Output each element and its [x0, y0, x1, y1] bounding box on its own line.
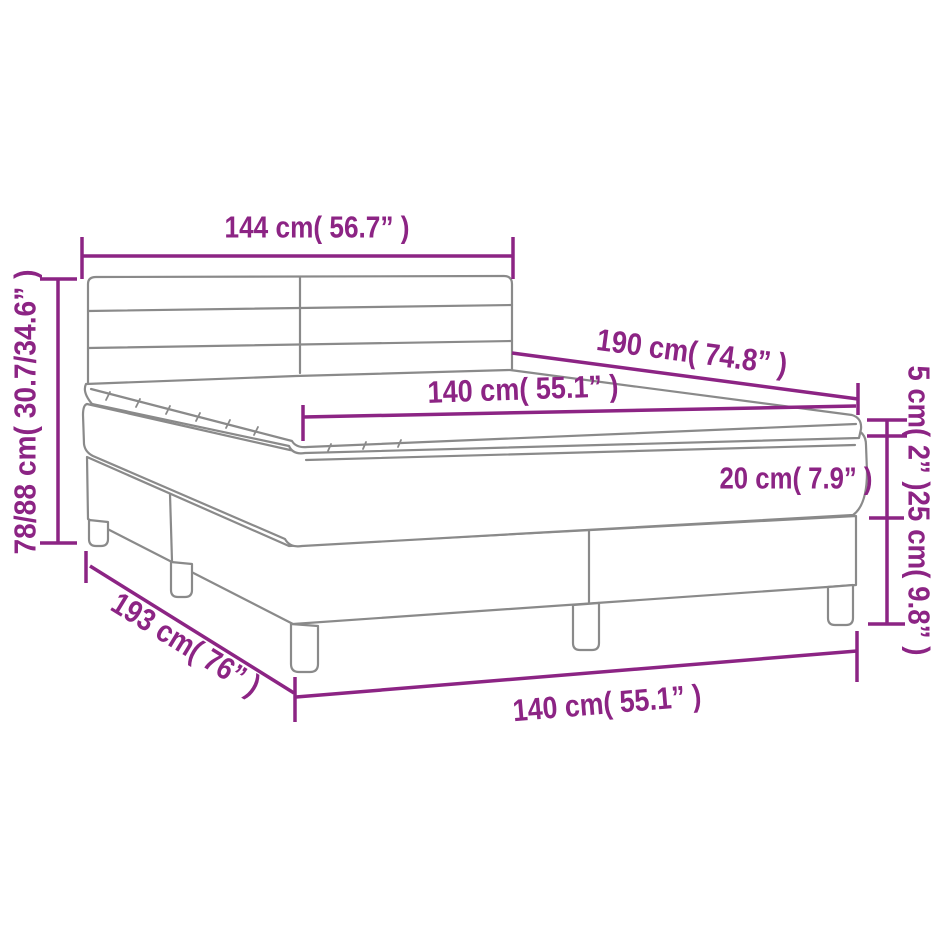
bed-leg-front-corner [291, 624, 318, 672]
bed-leg-foot-middle [573, 603, 599, 650]
dim-label-base-length: 193 cm( 76” ) [105, 585, 267, 703]
dim-label-base-width: 140 cm( 55.1” ) [511, 678, 702, 728]
dim-line-height-stack [867, 420, 907, 624]
bed-leg-front-middle [171, 562, 192, 597]
diagram-canvas: 144 cm( 56.7” ) 78/88 cm( 30.7/34.6” ) 1… [0, 0, 947, 947]
dim-label-length: 190 cm( 74.8” ) [595, 322, 790, 382]
dim-label-mattress-height: 20 cm( 7.9” ) [720, 461, 873, 496]
dim-label-base-height: 25 cm( 9.8” ) [902, 491, 937, 656]
dim-label-overall-height: 78/88 cm( 30.7/34.6” ) [8, 270, 43, 555]
dim-line-overall-height [40, 279, 77, 543]
dim-label-headboard-width: 144 cm( 56.7” ) [225, 210, 410, 245]
dim-label-topper-height: 5 cm( 2” ) [902, 366, 937, 491]
dim-label-mattress-width: 140 cm( 55.1” ) [427, 368, 619, 410]
bed-leg-left [89, 520, 108, 546]
bed-leg-foot-right [828, 585, 853, 625]
bed-dimension-diagram: 144 cm( 56.7” ) 78/88 cm( 30.7/34.6” ) 1… [0, 0, 947, 947]
